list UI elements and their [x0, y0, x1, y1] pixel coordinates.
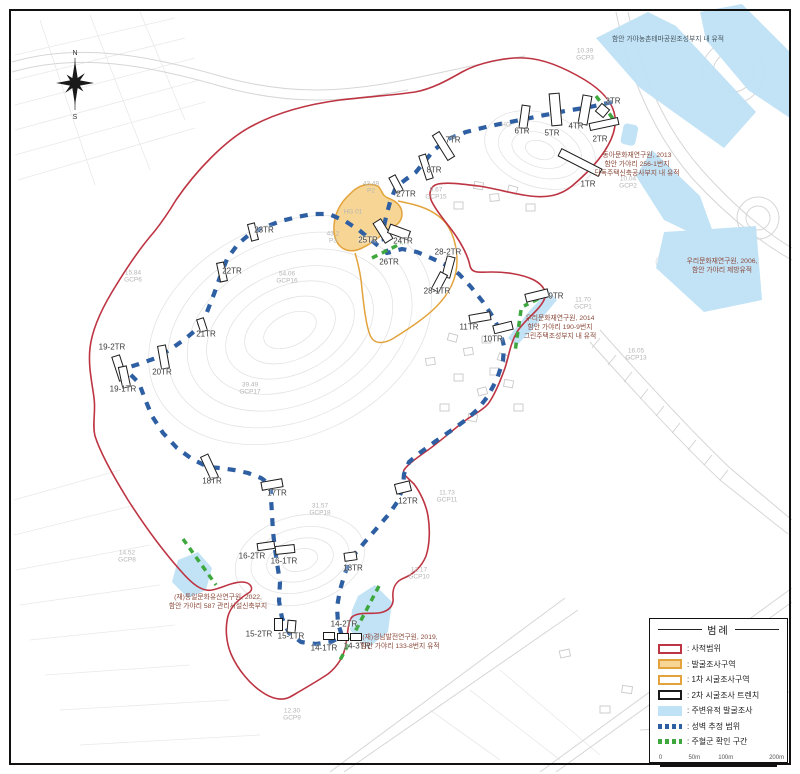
- legend-label: : 2차 시굴조사 트렌치: [687, 690, 759, 701]
- trench-label: 20TR: [152, 368, 172, 377]
- scale-label: 50m: [688, 755, 700, 761]
- legend-swatch: [658, 644, 682, 654]
- legend-title-line: [658, 629, 702, 630]
- trench-label: 14-2TR: [331, 620, 358, 629]
- trench-label: 16-2TR: [239, 552, 266, 561]
- legend-item: : 성벽 추정 범위: [658, 719, 779, 735]
- gcp-marker: 10.39GCP3: [576, 48, 594, 63]
- legend-title-row: 범례: [658, 622, 779, 637]
- trench-label: 3TR: [605, 97, 620, 106]
- trench-rect: [323, 632, 335, 640]
- terrain-label: HG 01: [344, 209, 363, 216]
- legend-label: : 성벽 추정 범위: [687, 721, 740, 732]
- legend-item: : 주변유적 발굴조사: [658, 703, 779, 719]
- gcp-marker: 12.17GCP10: [408, 567, 429, 582]
- legend-label: : 주변유적 발굴조사: [687, 705, 753, 716]
- trench-label: 17TR: [267, 489, 287, 498]
- gcp-marker: 43.2P3: [327, 231, 340, 246]
- legend-label: : 발굴조사구역: [687, 659, 736, 670]
- legend-swatch: [658, 659, 682, 669]
- trench-label: 15-1TR: [278, 632, 305, 641]
- legend-label: : 사적범위: [687, 643, 721, 654]
- gcp-marker: 43.49P2: [363, 181, 379, 196]
- legend-label: : 1차 시굴조사구역: [687, 674, 750, 685]
- trench-label: 7TR: [445, 136, 460, 145]
- map-annotation: 동아문화재연구원, 2013함안 가야리 256-1번지단독주택신축공사부지 내…: [594, 152, 679, 178]
- legend-swatch: [658, 724, 682, 729]
- trench-rect: [468, 311, 491, 324]
- gcp-marker: 14.52GCP8: [118, 550, 136, 565]
- trench-label: 24TR: [393, 237, 413, 246]
- gcp-marker: 12.30GCP9: [283, 708, 301, 723]
- scale-bar-line: [660, 764, 777, 768]
- legend-swatch: [658, 690, 682, 700]
- trench-label: 19-1TR: [110, 385, 137, 394]
- trench-label: 21TR: [196, 330, 216, 339]
- scale-bar: 050m100m200m: [658, 755, 779, 771]
- trench-label: 25TR: [358, 236, 378, 245]
- trench-label: 23TR: [254, 226, 274, 235]
- trench-rect: [337, 633, 349, 641]
- trench-rect: [548, 92, 562, 126]
- trench-label: 11TR: [460, 323, 479, 332]
- gcp-marker: 39.49GCP17: [239, 382, 260, 397]
- trench-label: 8TR: [426, 166, 441, 175]
- gcp-marker: 54.06GCP16: [276, 271, 297, 286]
- legend-swatch: [658, 739, 682, 744]
- map-annotation: (재)경남발전연구원, 2019,함안 가야리 133-8번지 유적: [360, 634, 439, 652]
- scale-label: 0: [659, 755, 662, 761]
- legend-title-line: [735, 629, 779, 630]
- legend: 범례 : 사적범위: 발굴조사구역: 1차 시굴조사구역: 2차 시굴조사 트렌…: [649, 618, 788, 763]
- trench-label: 2TR: [592, 135, 607, 144]
- trench-label: 18TR: [202, 477, 222, 486]
- trench-label: 15-2TR: [246, 630, 273, 639]
- gcp-marker: 31.57GCP18: [309, 503, 330, 518]
- legend-items: : 사적범위: 발굴조사구역: 1차 시굴조사구역: 2차 시굴조사 트렌치: …: [658, 641, 779, 750]
- trench-rect: [274, 618, 283, 631]
- trench-label: 16-1TR: [271, 557, 298, 566]
- gcp-marker: 11.70GCP1: [574, 297, 592, 312]
- trench-rect: [156, 344, 169, 369]
- gcp-marker: 11.73GCP11: [437, 490, 458, 505]
- trench-label: 9TR: [548, 292, 563, 301]
- map-annotation: 함안 가야농촌테마공원조성부지 내 유적: [612, 36, 724, 45]
- trench-label: 12TR: [398, 497, 418, 506]
- trench-label: 1TR: [580, 180, 595, 189]
- trench-label: 28-1TR: [424, 287, 451, 296]
- legend-item: : 발굴조사구역: [658, 657, 779, 673]
- trench-label: 6TR: [514, 127, 529, 136]
- trench-label: 27TR: [396, 190, 416, 199]
- gcp-marker: 16.05GCP13: [625, 348, 646, 363]
- trench-rect: [343, 551, 357, 562]
- trench-label: 26TR: [379, 258, 399, 267]
- trench-label: 5TR: [544, 129, 559, 138]
- trench-label: 19-2TR: [99, 343, 126, 352]
- trench-rect: [524, 288, 549, 303]
- map-annotation: 우리문화재연구원, 2006,함안 가야리 제방유적: [687, 258, 758, 276]
- trench-rect: [588, 117, 619, 131]
- gcp-marker: 15.84GCP6: [124, 270, 142, 285]
- map-annotation: (재)통일문화유산연구원, 2022,함안 가야리 587 관리시설신축부지: [169, 594, 267, 612]
- scale-label: 100m: [718, 755, 733, 761]
- trench-rect: [257, 541, 276, 551]
- trench-rect: [492, 320, 514, 334]
- map-annotation: 우리문화재연구원, 2014함안 가야리 190-9번지그린주택조성부지 내 유…: [524, 315, 597, 341]
- trench-label: 14-1TR: [311, 644, 338, 653]
- gcp-marker: 9.67GCP15: [425, 187, 446, 202]
- trench-label: 28-2TR: [435, 248, 462, 257]
- legend-swatch: [658, 675, 682, 685]
- legend-item: : 1차 시굴조사구역: [658, 672, 779, 688]
- legend-label: : 주혈군 확인 구간: [687, 736, 747, 747]
- terrain-label: HG: [501, 122, 511, 129]
- legend-item: : 주혈군 확인 구간: [658, 734, 779, 750]
- trench-rect: [275, 543, 296, 554]
- trench-label: 13TR: [343, 564, 363, 573]
- scale-label: 200m: [769, 755, 784, 761]
- map-canvas: N S 1TR2TR3TR4TR5TR6TR7TR8TR27TR25TR24TR…: [0, 0, 800, 774]
- trench-label: 4TR: [568, 122, 583, 131]
- legend-title: 범례: [707, 622, 729, 637]
- trench-label: 10TR: [483, 335, 503, 344]
- trench-label: 22TR: [222, 267, 242, 276]
- legend-swatch: [658, 706, 682, 716]
- legend-item: : 사적범위: [658, 641, 779, 657]
- legend-item: : 2차 시굴조사 트렌치: [658, 688, 779, 704]
- trench-rect: [394, 480, 412, 495]
